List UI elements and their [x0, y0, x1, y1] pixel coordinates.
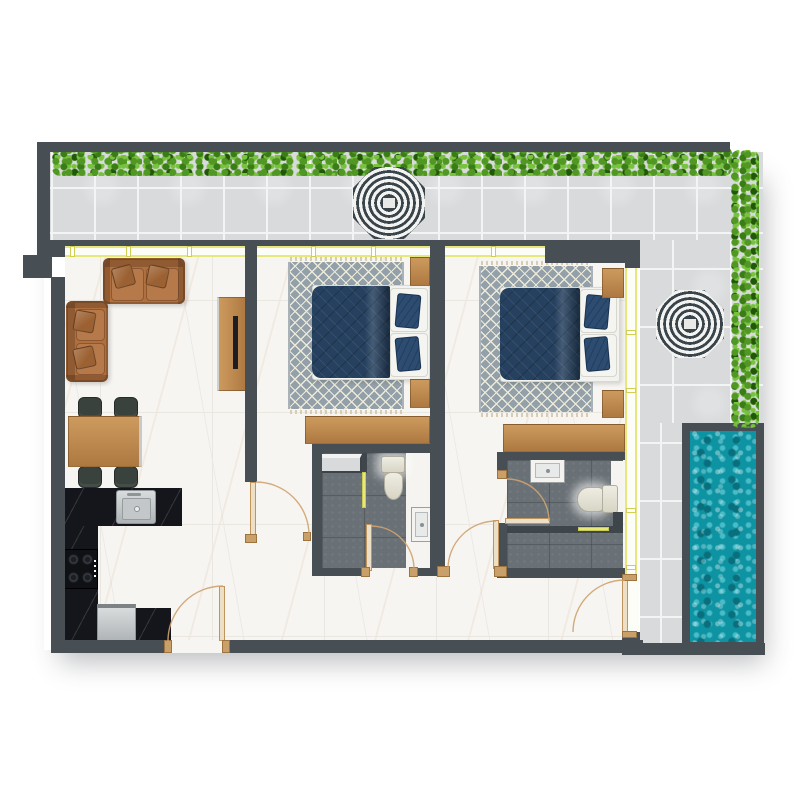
window-mullion — [371, 246, 376, 257]
nightstand — [410, 257, 430, 286]
bed-2-accent-pillow — [584, 336, 611, 372]
window-mullion — [626, 508, 636, 513]
door-jamb — [361, 567, 370, 577]
cooktop-knobs — [94, 560, 96, 578]
wall-left-lower — [51, 277, 65, 653]
kitchen-base-cabinet — [136, 608, 171, 641]
wall-bathroom-1-top — [312, 444, 443, 453]
wall-bathroom-2-bottom — [497, 568, 637, 578]
dining-table — [68, 416, 142, 467]
glazing-right-wall — [625, 268, 637, 575]
door-jamb — [303, 532, 311, 541]
wall-bathroom-1-bottom-a — [312, 568, 363, 576]
tv-screen — [233, 316, 238, 369]
bedroom-1-desk — [305, 416, 430, 444]
plunge-pool-water — [690, 431, 756, 642]
washbasin-1 — [411, 507, 432, 542]
bed-1-accent-pillow — [395, 293, 422, 329]
door-jamb — [164, 640, 172, 653]
door-leaf-entry — [219, 586, 225, 641]
wall-bathroom-1-left — [312, 444, 322, 575]
sofa-armrest — [178, 258, 185, 304]
window-mullion — [311, 246, 316, 257]
burner-icon — [68, 554, 79, 565]
bed-2-accent-pillow — [584, 294, 611, 330]
toilet-1-bowl — [384, 472, 403, 500]
window-mullion — [70, 246, 75, 257]
door-jamb — [494, 566, 507, 577]
wall-top — [37, 142, 730, 152]
wall-corner-bedroom-2 — [625, 240, 640, 268]
door-leaf-bedroom-2 — [493, 520, 499, 569]
door-leaf-bathroom-2 — [505, 518, 550, 524]
wall-living-bedroom-1 — [245, 240, 257, 482]
kitchen-sink — [116, 490, 156, 524]
window-bedroom-1 — [257, 246, 430, 257]
parasol-icon-right — [656, 290, 724, 358]
toilet-2-bowl — [577, 487, 605, 512]
tv-cabinet — [217, 297, 247, 391]
bathroom-2-floor — [507, 460, 623, 568]
window-mullion — [626, 565, 636, 570]
kitchen-faucet-icon — [127, 493, 141, 496]
sofa-armrest — [66, 301, 108, 308]
sofa-pillow — [145, 264, 170, 289]
window-mullion — [126, 246, 131, 257]
kitchen-sink-drain — [134, 506, 140, 512]
door-jamb — [497, 470, 507, 479]
door-jamb — [409, 567, 418, 577]
washbasin-2 — [530, 459, 565, 483]
wall-bottom-left — [51, 640, 172, 653]
parasol-icon-top — [353, 167, 425, 239]
burner-icon — [68, 572, 79, 583]
bathroom-1-storage-shelf — [318, 454, 362, 473]
wall-bottom-right — [622, 643, 765, 655]
nightstand — [602, 268, 624, 298]
bed-1-duvet — [312, 286, 390, 378]
toilet-1-tank — [381, 456, 405, 473]
wall-bottom-main — [222, 640, 643, 653]
window-mullion — [626, 388, 636, 393]
shower-partition-1 — [362, 453, 367, 473]
sofa-backrest — [67, 303, 75, 380]
entry-threshold — [172, 640, 222, 653]
dining-chair — [78, 466, 102, 488]
dining-chair — [114, 466, 138, 488]
dishwasher — [97, 604, 136, 642]
door-leaf-bathroom-1 — [366, 524, 372, 571]
wall-facade-left-pier — [50, 240, 65, 257]
nightstand — [410, 379, 430, 408]
sofa-armrest — [103, 258, 110, 304]
sofa-two-seater-top — [103, 258, 185, 304]
door-jamb — [245, 534, 257, 543]
toilet-2-tank — [602, 485, 618, 513]
nightstand — [602, 390, 624, 418]
door-jamb — [622, 631, 637, 638]
window-mullion — [491, 246, 496, 257]
wall-left-upper — [37, 142, 50, 256]
cooktop — [64, 549, 98, 589]
sofa-pillow — [72, 309, 96, 333]
door-jamb — [437, 566, 450, 577]
door-jamb — [622, 574, 637, 581]
wall-bathroom-2-top — [497, 452, 637, 460]
bed-2-duvet — [500, 288, 580, 380]
wall-bedroom-divider — [430, 240, 445, 576]
door-leaf-terrace — [622, 579, 628, 632]
shower-screen-1 — [362, 472, 366, 508]
window-living-room — [65, 246, 245, 257]
sofa-backrest — [105, 259, 183, 267]
washbasin-1-drain — [420, 523, 424, 527]
wall-left-step — [23, 255, 52, 278]
sofa-armrest — [66, 375, 108, 382]
sofa-two-seater-side — [66, 301, 108, 382]
door-leaf-bedroom-1 — [250, 482, 256, 536]
window-mullion — [626, 330, 636, 335]
terrace-paving-pool-strip — [640, 423, 682, 643]
door-jamb — [222, 640, 230, 653]
bedroom-2-desk — [503, 424, 625, 452]
washbasin-2-drain — [546, 469, 550, 473]
burner-icon — [82, 554, 93, 565]
burner-icon — [82, 572, 93, 583]
floor-plan — [0, 0, 800, 800]
bed-1-accent-pillow — [395, 336, 422, 372]
shower-screen-2 — [578, 527, 609, 531]
window-mullion — [187, 246, 192, 257]
bathroom-2-wall-stub — [613, 512, 623, 529]
sofa-pillow — [72, 345, 97, 370]
hedge-right — [731, 150, 759, 428]
